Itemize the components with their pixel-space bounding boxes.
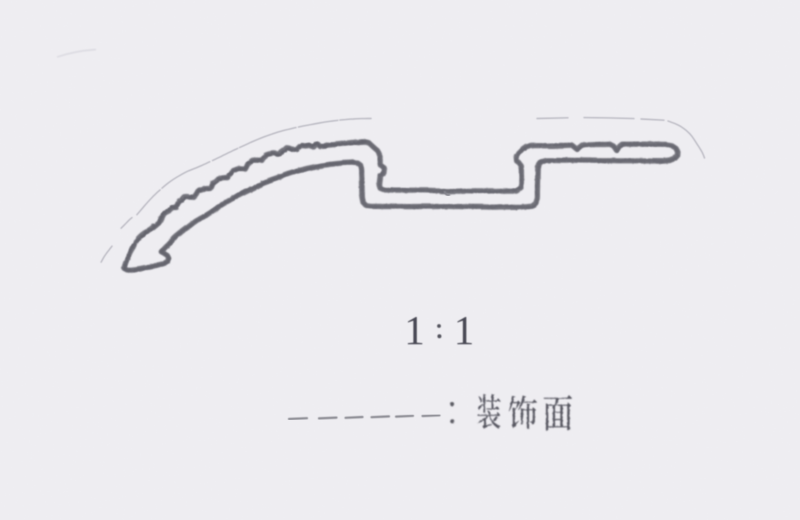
svg-text:1: 1: [404, 307, 425, 353]
svg-text:1: 1: [454, 307, 475, 353]
